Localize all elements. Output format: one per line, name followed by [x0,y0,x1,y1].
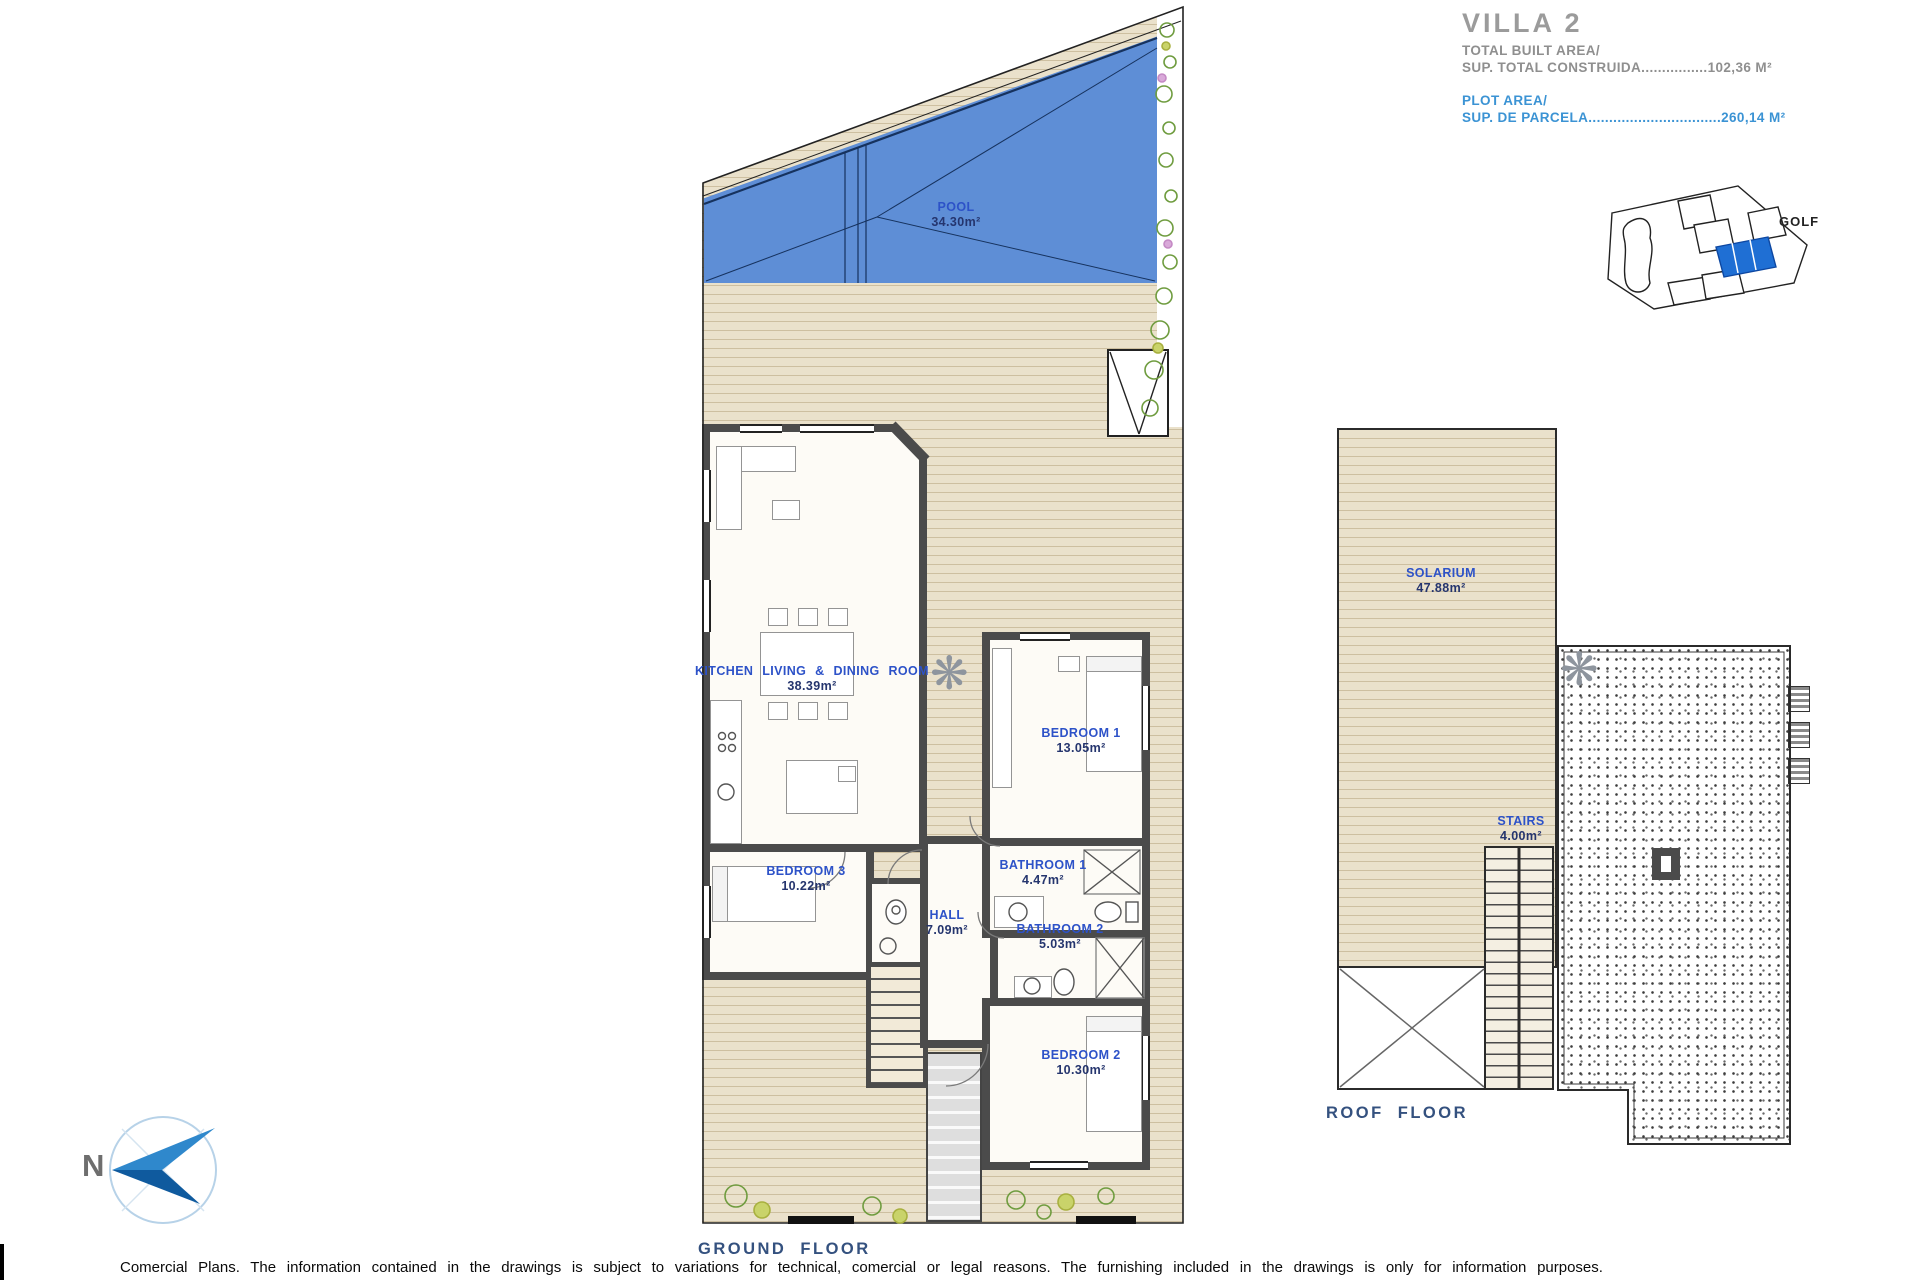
title-block: VILLA 2 TOTAL BUILT AREA/ SUP. TOTAL CON… [1462,8,1912,127]
window [1141,1036,1150,1100]
site-plan-inset [1608,186,1807,309]
roof-gravel-area [1558,646,1790,1144]
roof-floor-title: ROOF FLOOR [1326,1104,1468,1123]
dining-chair [768,702,788,720]
floor-plan-sheet: ❋ ❋ POOL 34.30m² KITCHEN LIVING & DINING… [0,0,1920,1280]
window [702,580,711,632]
bathroom-sink-unit [1014,976,1052,998]
nightstand [1058,656,1080,672]
window [838,424,874,433]
deck-ornament-icon: ❋ [930,650,969,696]
entrance-steps [926,1052,982,1222]
room-area: 34.30m² [931,215,980,230]
label-kitchen-living-dining: KITCHEN LIVING & DINING ROOM 38.39m² [695,664,929,694]
sheet-corner-mark [0,1244,4,1280]
plot-area-label: PLOT AREA/ [1462,93,1912,110]
dining-chair [798,702,818,720]
room-name: BEDROOM 3 [766,864,845,879]
room-name: HALL [926,908,968,923]
room-name: KITCHEN LIVING & DINING ROOM [695,664,929,679]
sofa [716,446,742,530]
right-border-planting-strip [1157,7,1183,427]
window [800,424,842,433]
label-bathroom-1: BATHROOM 1 4.47m² [999,858,1086,888]
disclaimer-text: Comercial Plans. The information contain… [120,1259,1603,1276]
window [740,424,782,433]
room-name: BATHROOM 1 [999,858,1086,873]
room-area: 4.47m² [999,873,1086,888]
room-name: POOL [931,200,980,215]
wardrobe [992,648,1012,788]
window [702,470,711,522]
villa-title: VILLA 2 [1462,8,1912,39]
kitchen-appliance [838,766,856,782]
room-name: SOLARIUM [1406,566,1476,581]
roof-chimney-core [1661,856,1671,872]
dining-chair [798,608,818,626]
window [702,886,711,938]
window [1141,686,1150,750]
ground-floor-title: GROUND FLOOR [698,1240,871,1259]
label-stairs: STAIRS 4.00m² [1497,814,1544,844]
roof-vent-1 [1788,686,1810,712]
interior-stairs [866,962,928,1088]
room-area: 4.00m² [1497,829,1544,844]
north-arrow-icon [110,1117,216,1223]
label-bathroom-2: BATHROOM 2 5.03m² [1016,922,1103,952]
roof-vent-2 [1788,722,1810,748]
room-area: 5.03m² [1016,937,1103,952]
room-area: 10.30m² [1041,1063,1120,1078]
window [1020,632,1070,641]
deck-ornament-icon: ❋ [1560,646,1599,692]
built-area-value: SUP. TOTAL CONSTRUIDA................102… [1462,60,1912,77]
roof-pergola-void [1337,966,1487,1090]
built-area-label: TOTAL BUILT AREA/ [1462,43,1912,60]
room-area: 13.05m² [1041,741,1120,756]
dining-chair [828,608,848,626]
label-bedroom-1: BEDROOM 1 13.05m² [1041,726,1120,756]
roof-stairs [1484,846,1554,1090]
label-solarium: SOLARIUM 47.88m² [1406,566,1476,596]
room-name: BEDROOM 2 [1041,1048,1120,1063]
bed-pillow [712,866,728,922]
coffee-table [772,500,800,520]
label-hall: HALL 7.09m² [926,908,968,938]
bed-pillow [1086,1016,1142,1032]
room-wc [866,878,928,970]
label-bedroom-3: BEDROOM 3 10.22m² [766,864,845,894]
room-area: 7.09m² [926,923,968,938]
label-bedroom-2: BEDROOM 2 10.30m² [1041,1048,1120,1078]
plot-area-value: SUP. DE PARCELA.........................… [1462,110,1912,127]
room-area: 10.22m² [766,879,845,894]
room-name: STAIRS [1497,814,1544,829]
room-area: 47.88m² [1406,581,1476,596]
window [1030,1161,1088,1170]
room-area: 38.39m² [695,679,929,694]
room-name: BATHROOM 2 [1016,922,1103,937]
dining-chair [828,702,848,720]
kitchen-counter [710,700,742,844]
label-pool: POOL 34.30m² [931,200,980,230]
golf-label: GOLF [1779,214,1819,229]
north-letter: N [82,1148,104,1184]
room-name: BEDROOM 1 [1041,726,1120,741]
bed-pillow [1086,656,1142,672]
roof-vent-3 [1788,758,1810,784]
dining-chair [768,608,788,626]
